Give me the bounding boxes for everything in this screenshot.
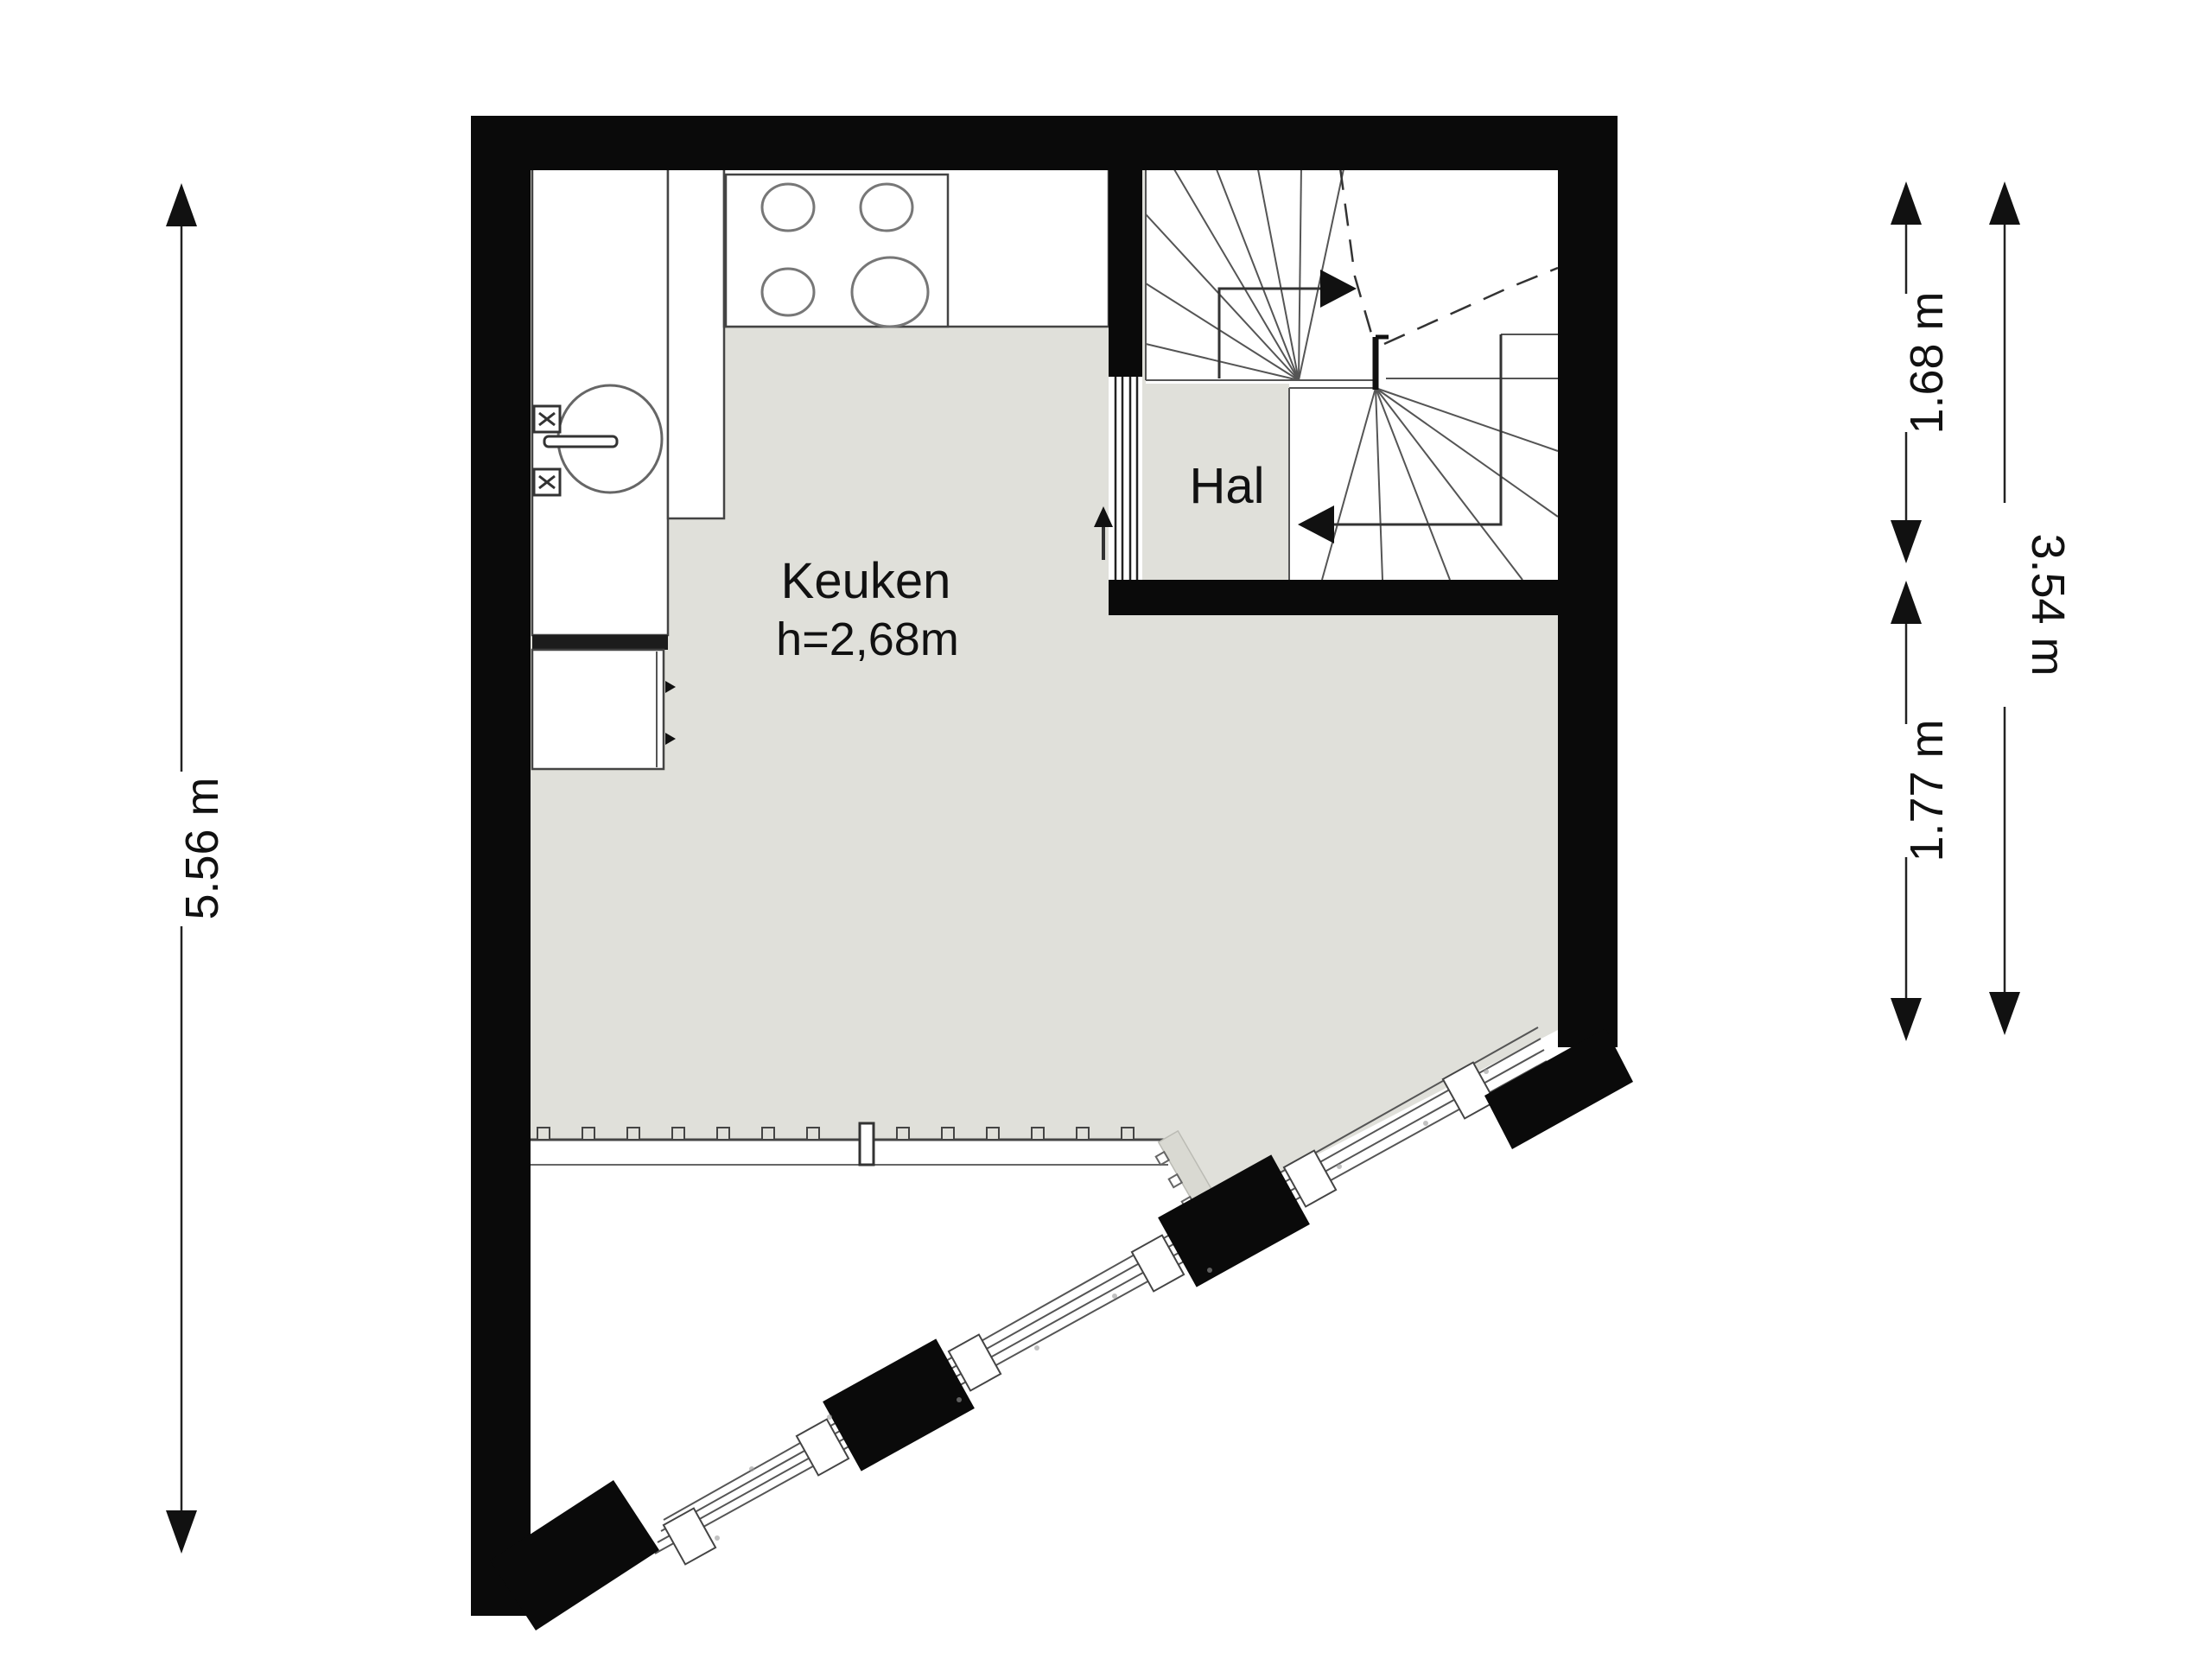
hall-divider-wall xyxy=(1109,165,1142,377)
top-wall xyxy=(471,116,1618,170)
hall-bottom-wall xyxy=(1109,580,1558,615)
base-cabinet xyxy=(532,650,676,769)
hall-label: Hal xyxy=(1189,458,1264,514)
dimension-right-stair-block: 1.68 m xyxy=(1891,181,1953,563)
kitchen-height-label: h=2,68m xyxy=(776,613,959,665)
floorplan-page: Keuken h=2,68m Hal 5.56 m 1.68 m 1.77 m … xyxy=(0,0,2212,1659)
dimension-left-total: 5.56 m xyxy=(166,183,228,1554)
dimension-right-total-label: 3.54 m xyxy=(2022,533,2074,676)
dimension-right-total: 3.54 m xyxy=(1989,181,2074,1035)
tall-cabinet xyxy=(668,165,724,518)
dimension-right-lower-label: 1.77 m xyxy=(1901,719,1953,861)
counter-divider xyxy=(532,635,668,650)
dimension-right-lower-part: 1.77 m xyxy=(1891,581,1953,1041)
dimension-left-total-label: 5.56 m xyxy=(176,777,228,919)
window-mullion xyxy=(860,1123,874,1165)
right-wall xyxy=(1558,116,1618,1047)
stove xyxy=(726,175,948,327)
floorplan-canvas: Keuken h=2,68m Hal 5.56 m 1.68 m 1.77 m … xyxy=(0,0,2212,1659)
dimension-right-stair-label: 1.68 m xyxy=(1901,291,1953,434)
kitchen-label: Keuken xyxy=(781,553,951,609)
left-wall xyxy=(471,116,531,1616)
hall-entry-door xyxy=(1109,377,1142,584)
